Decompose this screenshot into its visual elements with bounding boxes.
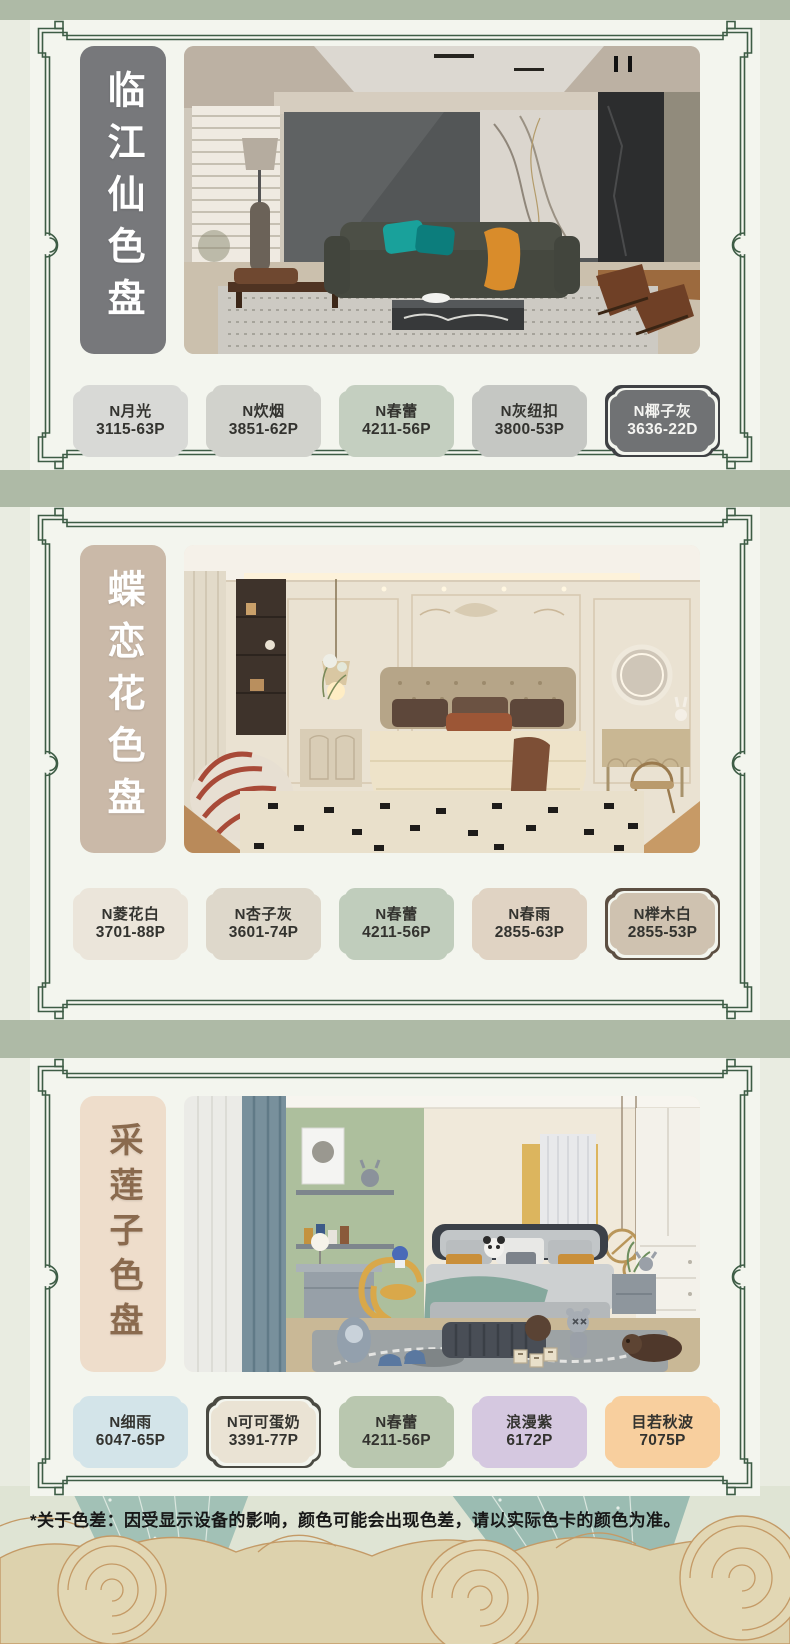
swatch-code: 3701-88P [96, 925, 166, 941]
section-title-plaque: 临江仙色盘 [80, 46, 166, 354]
swatch-code: 3601-74P [229, 925, 299, 941]
swatch-name: N月光 [109, 404, 151, 419]
section-title: 蝶恋花色盘 [104, 569, 142, 829]
color-swatch: N炊烟 3851-62P [206, 385, 321, 457]
separator-band [0, 1020, 790, 1058]
palette-section-dielianhua: 蝶恋花色盘 [30, 507, 760, 1020]
swatch-code: 6047-65P [96, 1433, 166, 1449]
palette-section-cailianzi: 采莲子色盘 [30, 1058, 760, 1496]
swatch-code: 3115-63P [96, 422, 165, 438]
swatch-code: 4211-56P [362, 925, 431, 941]
color-swatch: N杏子灰 3601-74P [206, 888, 321, 960]
color-swatch: N菱花白 3701-88P [73, 888, 188, 960]
swatch-name: N炊烟 [242, 404, 284, 419]
swatch-name: N春蕾 [375, 1415, 417, 1430]
palette-section-linjiangxian: 临江仙色盘 [30, 20, 760, 470]
swatch-code: 2855-63P [495, 925, 565, 941]
color-swatch: N细雨 6047-65P [73, 1396, 188, 1468]
swatch-code: 3391-77P [229, 1433, 299, 1449]
color-swatch: 目若秋波 7075P [605, 1396, 720, 1468]
section-title-plaque: 采莲子色盘 [80, 1096, 166, 1372]
color-swatch: 浪漫紫 6172P [472, 1396, 587, 1468]
swatch-name: N椰子灰 [634, 404, 692, 419]
kids-room-photo [184, 1096, 700, 1372]
section-title: 临江仙色盘 [104, 70, 142, 330]
top-band [0, 0, 790, 20]
swatch-code: 6172P [506, 1433, 552, 1449]
swatch-name: N灰纽扣 [501, 404, 559, 419]
swatch-code: 4211-56P [362, 1433, 431, 1449]
color-swatch: N月光 3115-63P [73, 385, 188, 457]
swatch-name: N可可蛋奶 [227, 1415, 300, 1430]
swatch-name: N春蕾 [375, 404, 417, 419]
section-title-plaque: 蝶恋花色盘 [80, 545, 166, 853]
color-swatch: N春蕾 4211-56P [339, 385, 454, 457]
separator-band [0, 470, 790, 507]
swatch-name: 目若秋波 [631, 1415, 693, 1430]
swatch-name: N细雨 [109, 1415, 151, 1430]
color-swatch: N灰纽扣 3800-53P [472, 385, 587, 457]
color-swatch-highlighted: N可可蛋奶 3391-77P [206, 1396, 321, 1468]
section-title: 采莲子色盘 [106, 1122, 140, 1347]
swatch-code: 3800-53P [495, 422, 565, 438]
color-disclaimer: *关于色差：因受显示设备的影响，颜色可能会出现色差，请以实际色卡的颜色为准。 [30, 1506, 681, 1531]
color-swatch: N春蕾 4211-56P [339, 1396, 454, 1468]
color-swatch: N春蕾 4211-56P [339, 888, 454, 960]
swatch-name: 浪漫紫 [506, 1415, 553, 1430]
swatch-code: 7075P [639, 1433, 685, 1449]
swatch-code: 3636-22D [627, 422, 697, 438]
swatch-name: N春雨 [508, 907, 550, 922]
living-room-photo [184, 46, 700, 354]
swatch-code: 4211-56P [362, 422, 431, 438]
swatch-name: N榉木白 [634, 907, 692, 922]
swatch-name: N杏子灰 [235, 907, 293, 922]
swatch-code: 3851-62P [229, 422, 299, 438]
color-swatch: N春雨 2855-63P [472, 888, 587, 960]
color-swatch-highlighted: N椰子灰 3636-22D [605, 385, 720, 457]
swatch-name: N春蕾 [375, 907, 417, 922]
bedroom-photo [184, 545, 700, 853]
color-palette-poster: 临江仙色盘 [0, 0, 790, 1644]
swatch-code: 2855-53P [628, 925, 698, 941]
color-swatch-highlighted: N榉木白 2855-53P [605, 888, 720, 960]
swatch-name: N菱花白 [102, 907, 160, 922]
